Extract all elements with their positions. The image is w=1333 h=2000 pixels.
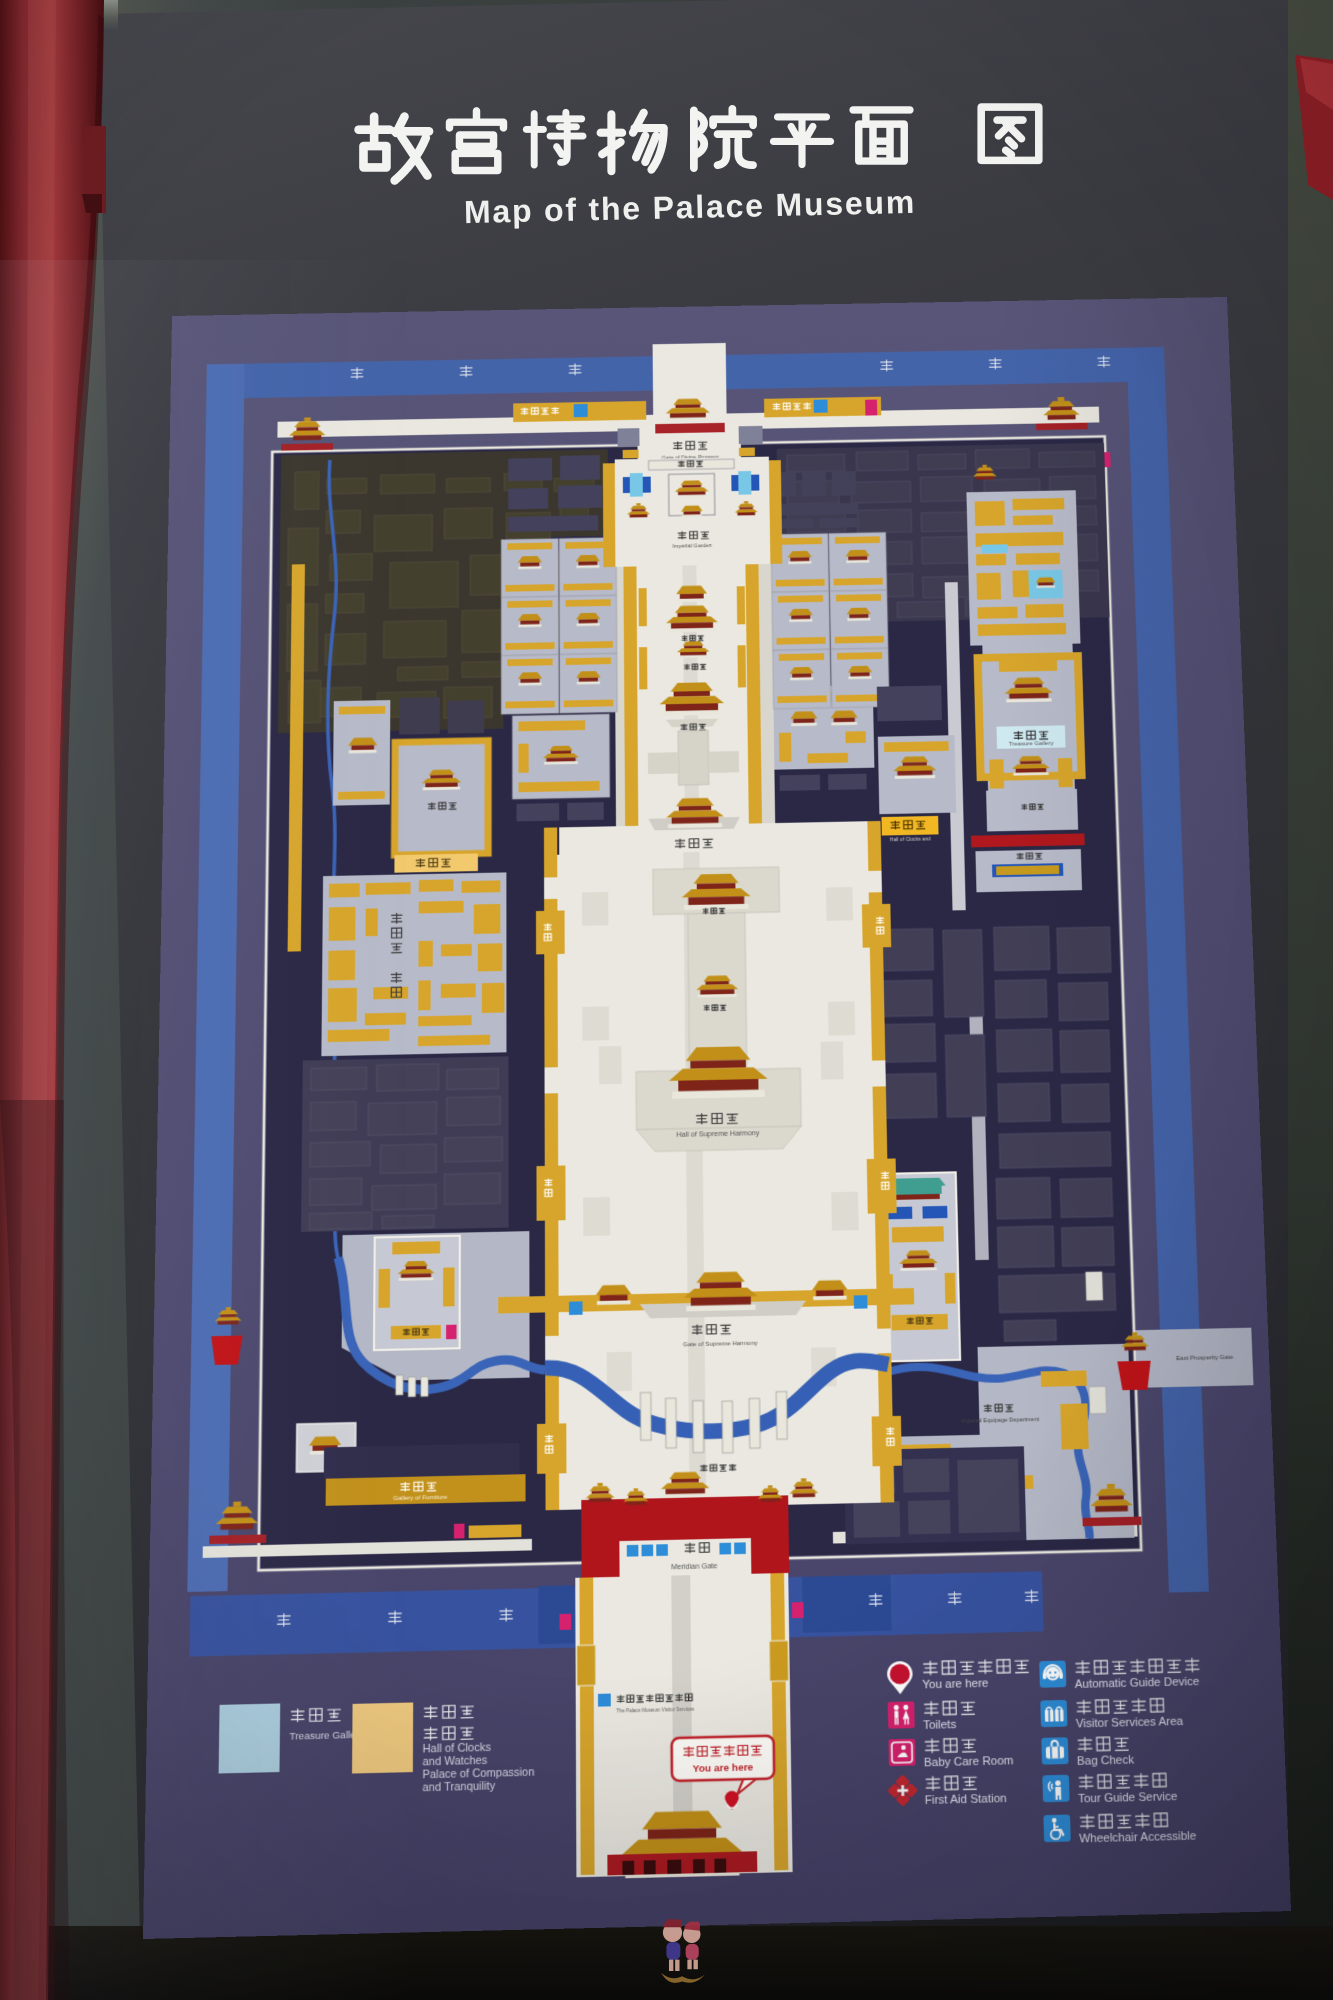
- svg-text:Hall of Clocks and: Hall of Clocks and: [890, 836, 931, 843]
- svg-text:Imperial Garden: Imperial Garden: [673, 543, 713, 550]
- svg-text:Meridian Gate: Meridian Gate: [671, 1563, 718, 1572]
- svg-text:Map of the Palace Museum: Map of the Palace Museum: [464, 184, 917, 230]
